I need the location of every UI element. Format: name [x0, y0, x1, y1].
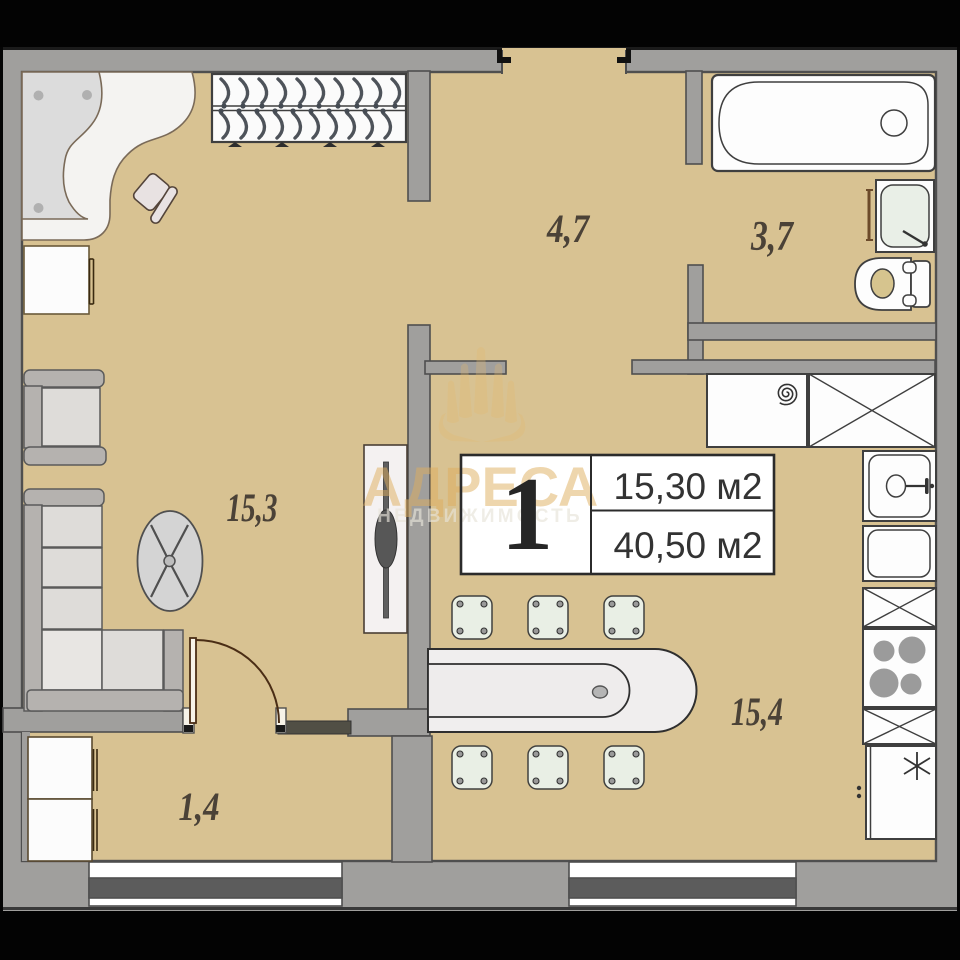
svg-text:15,30 м2: 15,30 м2: [614, 466, 763, 507]
svg-text:3,7: 3,7: [750, 214, 794, 260]
svg-text:40,50 м2: 40,50 м2: [614, 525, 763, 566]
svg-text:1: 1: [501, 455, 554, 572]
svg-text:4,7: 4,7: [546, 206, 591, 251]
svg-text:15,3: 15,3: [227, 485, 278, 530]
svg-text:15,4: 15,4: [731, 689, 783, 734]
svg-text:1,4: 1,4: [179, 784, 220, 829]
